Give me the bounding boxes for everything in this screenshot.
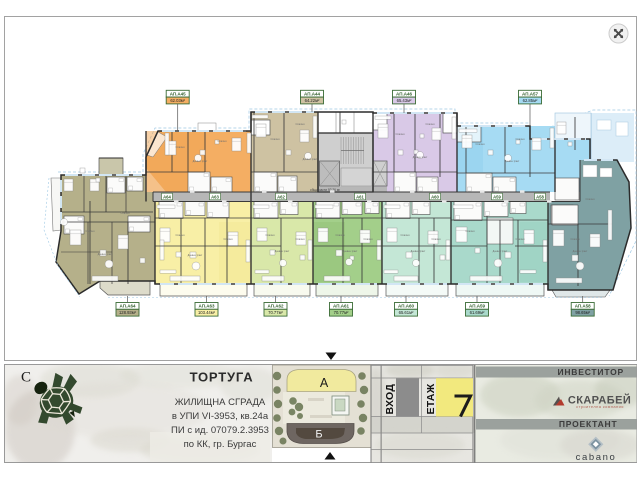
svg-text:АП.А58: АП.А58: [575, 304, 591, 309]
svg-text:ВХОД: ВХОД: [384, 384, 396, 415]
svg-text:Дневен тракт: Дневен тракт: [411, 250, 427, 253]
svg-text:Дневен тракт: Дневен тракт: [275, 250, 291, 253]
svg-text:Спалня: Спалня: [295, 237, 305, 241]
svg-text:ПРОЕКТАНТ: ПРОЕКТАНТ: [559, 419, 618, 429]
svg-text:Спалня: Спалня: [515, 237, 525, 241]
svg-text:А58: А58: [536, 194, 544, 199]
svg-text:Спалня: Спалня: [85, 229, 95, 233]
svg-text:ПИ с ид. 07079.2.3953: ПИ с ид. 07079.2.3953: [171, 425, 269, 436]
svg-text:А64: А64: [163, 194, 171, 199]
svg-text:Дневен тракт: Дневен тракт: [413, 156, 429, 159]
svg-text:65.61м²: 65.61м²: [399, 310, 414, 315]
svg-text:Спалня: Спалня: [570, 237, 580, 241]
svg-text:Дневен тракт: Дневен тракт: [193, 160, 209, 163]
svg-text:61.69м²: 61.69м²: [470, 310, 485, 315]
svg-text:ЕТАЖ: ЕТАЖ: [425, 383, 437, 414]
svg-text:АП.А57: АП.А57: [522, 92, 538, 97]
svg-text:62.85м²: 62.85м²: [523, 98, 538, 103]
svg-text:АП.А59: АП.А59: [469, 304, 485, 309]
svg-text:Спалня: Спалня: [223, 237, 233, 241]
svg-text:98.65м²: 98.65м²: [575, 310, 590, 315]
svg-text:Спалня: Спалня: [515, 137, 525, 141]
svg-text:А59: А59: [493, 194, 501, 199]
svg-text:Спалня: Спалня: [585, 197, 595, 201]
svg-text:Спалня: Спалня: [335, 233, 345, 237]
svg-text:А63: А63: [211, 194, 219, 199]
svg-text:Дневен тракт: Дневен тракт: [343, 250, 359, 253]
svg-text:Спалня: Спалня: [475, 142, 485, 146]
svg-text:Спалня: Спалня: [295, 122, 305, 126]
svg-text:Спалня: Спалня: [270, 137, 280, 141]
svg-text:Спалня: Спалня: [217, 139, 227, 143]
svg-text:АП.А61: АП.А61: [333, 304, 349, 309]
svg-text:Б: Б: [315, 429, 322, 441]
svg-text:по КК, гр. Бургас: по КК, гр. Бургас: [184, 439, 257, 450]
svg-text:Спалня: Спалня: [175, 145, 185, 149]
svg-text:Спалня: Спалня: [120, 211, 130, 215]
svg-text:64.22м²: 64.22м²: [305, 98, 320, 103]
svg-text:Дневен тракт: Дневен тракт: [188, 254, 204, 257]
svg-text:строителна компания: строителна компания: [576, 404, 624, 409]
svg-text:ИНВЕСТИТОР: ИНВЕСТИТОР: [557, 367, 624, 377]
svg-text:С: С: [21, 370, 31, 386]
svg-text:Спалня: Спалня: [265, 233, 275, 237]
svg-text:103.44м²: 103.44м²: [198, 310, 216, 315]
svg-text:Дневен тракт: Дневен тракт: [573, 250, 589, 253]
svg-text:62.03м²: 62.03м²: [170, 98, 185, 103]
svg-text:АП.А62: АП.А62: [268, 304, 284, 309]
svg-text:Спалня: Спалня: [431, 237, 441, 241]
svg-text:АП.А44: АП.А44: [304, 92, 320, 97]
svg-text:Спалня: Спалня: [465, 229, 475, 233]
svg-text:Дневен тракт: Дневен тракт: [505, 160, 521, 163]
svg-text:общи части 92.26 м²: общи части 92.26 м²: [310, 188, 340, 192]
svg-text:АП.А63: АП.А63: [199, 304, 215, 309]
svg-text:АП.А45: АП.А45: [170, 92, 186, 97]
svg-text:Спалня: Спалня: [425, 122, 435, 126]
svg-text:АП.А60: АП.А60: [398, 304, 414, 309]
svg-text:ЖИЛИЩНА СГРАДА: ЖИЛИЩНА СГРАДА: [175, 397, 266, 408]
svg-text:70.77м²: 70.77м²: [268, 310, 283, 315]
svg-text:АП.А46: АП.А46: [396, 92, 412, 97]
svg-text:cabano: cabano: [576, 452, 617, 463]
svg-text:А62: А62: [277, 194, 285, 199]
svg-text:Дневен тракт: Дневен тракт: [98, 253, 114, 256]
svg-text:ТОРТУГА: ТОРТУГА: [190, 370, 254, 385]
svg-text:Спалня: Спалня: [395, 132, 405, 136]
svg-text:в УПИ VI-3953, кв.24а: в УПИ VI-3953, кв.24а: [172, 411, 269, 422]
svg-text:65.43м²: 65.43м²: [397, 98, 412, 103]
svg-text:А61: А61: [356, 194, 364, 199]
svg-text:Дневен тракт: Дневен тракт: [493, 250, 509, 253]
svg-text:Спалня: Спалня: [400, 233, 410, 237]
svg-text:128.93м²: 128.93м²: [119, 310, 137, 315]
svg-text:Спалня: Спалня: [363, 237, 373, 241]
svg-text:70.77м²: 70.77м²: [334, 310, 349, 315]
svg-text:АП.А64: АП.А64: [120, 304, 136, 309]
svg-text:А: А: [320, 376, 329, 390]
svg-text:Спалня: Спалня: [175, 233, 185, 237]
svg-text:А60: А60: [431, 194, 439, 199]
svg-text:Дневен тракт: Дневен тракт: [303, 158, 319, 161]
